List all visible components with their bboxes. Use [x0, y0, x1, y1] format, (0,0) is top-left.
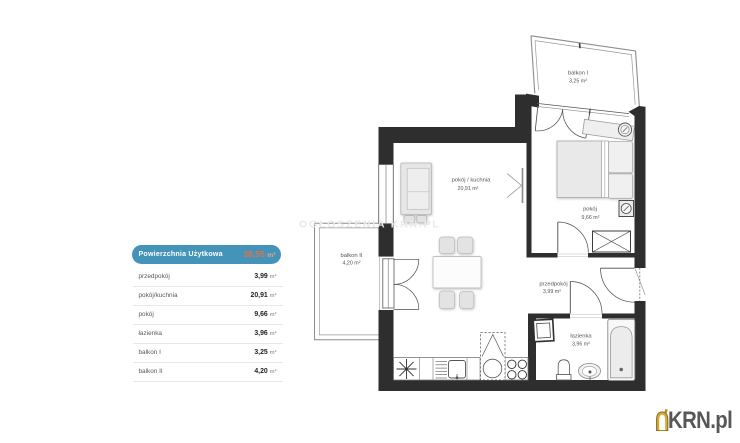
- svg-text:OGŁOSZENIA KRN.PL: OGŁOSZENIA KRN.PL: [299, 219, 441, 231]
- svg-text:pokój / kuchnia: pokój / kuchnia: [452, 177, 491, 183]
- svg-text:4,20 m²: 4,20 m²: [343, 261, 361, 267]
- svg-text:pokój: pokój: [583, 207, 597, 213]
- svg-text:3,25 m²: 3,25 m²: [569, 79, 587, 85]
- svg-text:balkon II: balkon II: [341, 253, 363, 259]
- svg-text:9,66 m²: 9,66 m²: [582, 215, 600, 221]
- svg-text:3,99 m²: 3,99 m²: [543, 289, 561, 295]
- svg-text:łazienka: łazienka: [570, 333, 592, 339]
- svg-text:20,91 m²: 20,91 m²: [458, 186, 479, 192]
- svg-text:przedpokój: przedpokój: [539, 281, 567, 287]
- svg-text:3,96 m²: 3,96 m²: [572, 342, 590, 348]
- svg-text:balkon I: balkon I: [568, 71, 589, 77]
